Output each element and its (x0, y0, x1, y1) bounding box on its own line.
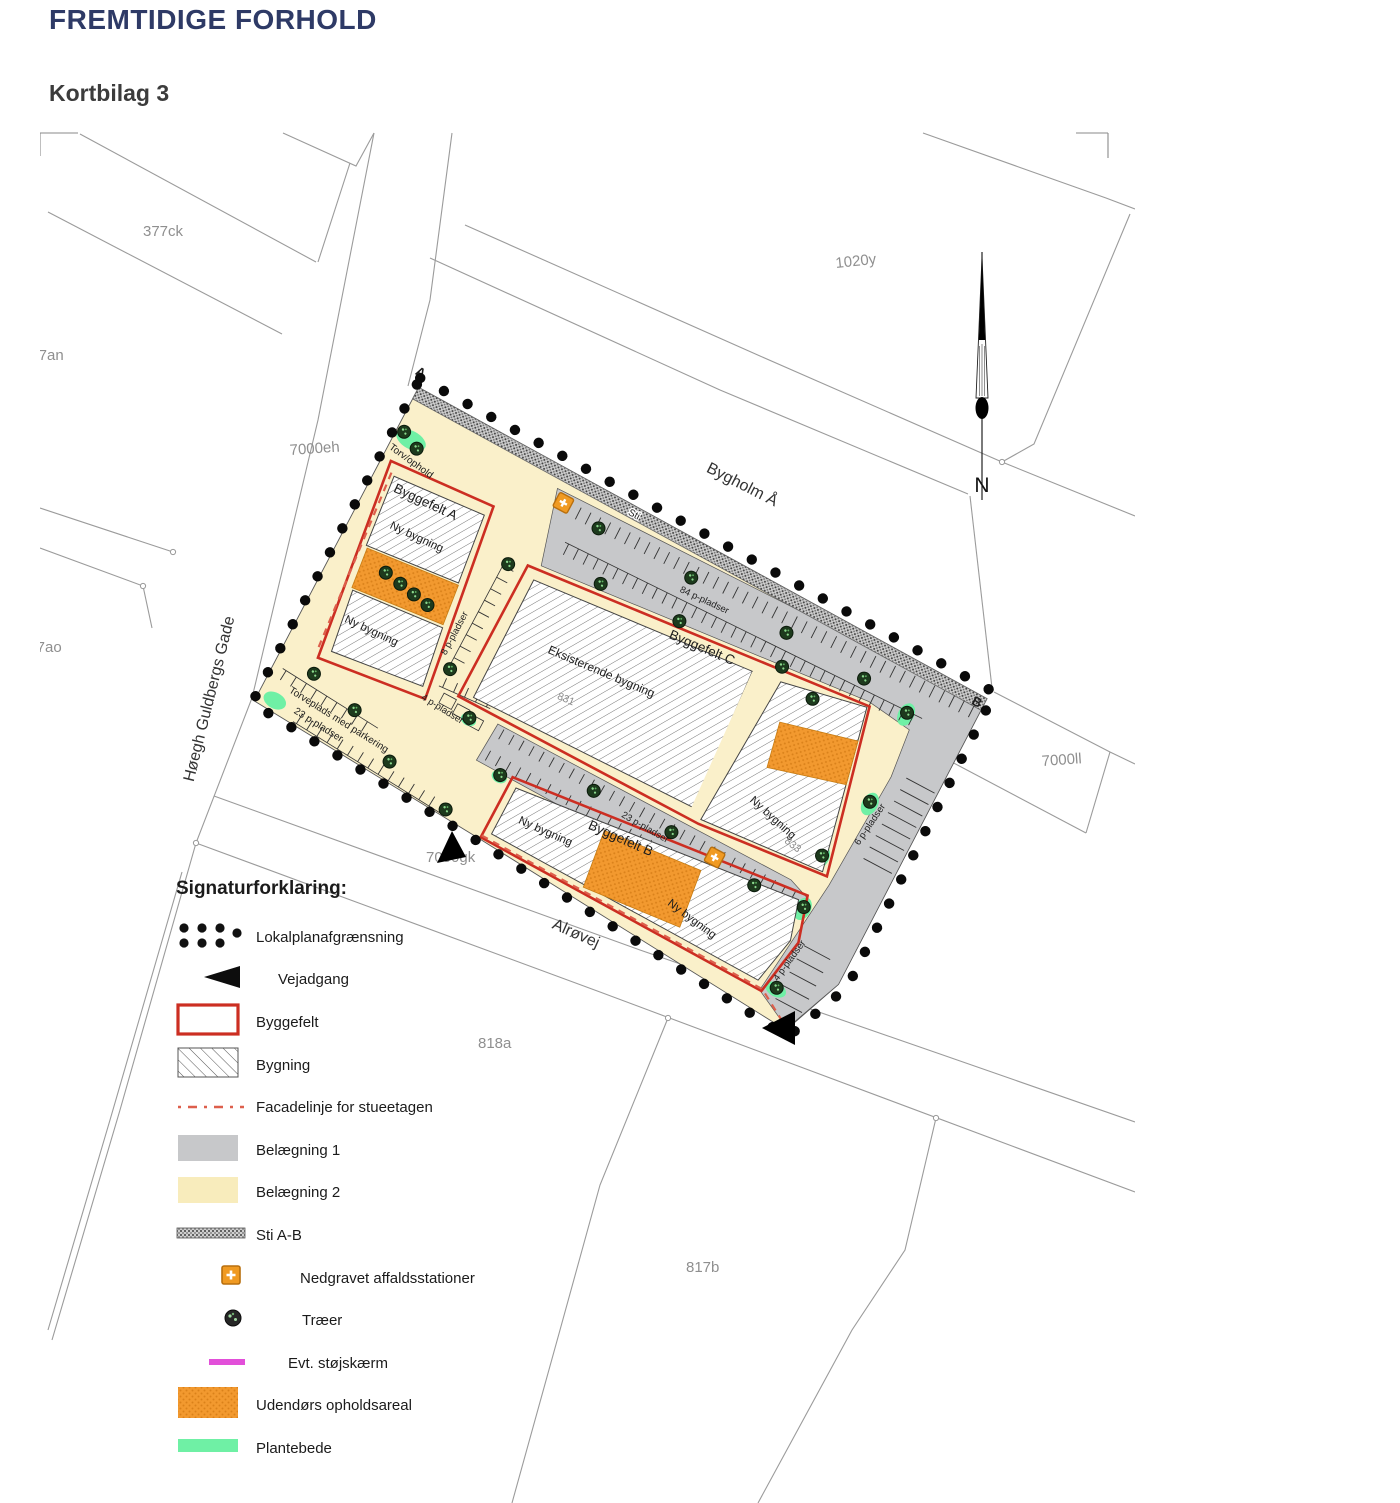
parcel-377an: 377an (40, 347, 64, 364)
legend-item-belaegning1: Belægning 1 (176, 1129, 506, 1172)
parcel-1020y: 1020y (835, 251, 878, 272)
magenta-line-icon (176, 1354, 288, 1372)
road-access-triangle-icon (176, 964, 278, 995)
legend-item-byggefelt: Byggefelt (176, 1001, 506, 1044)
legend-item-traeer: Træer (176, 1299, 506, 1342)
legend-item-sti: Sti A-B (176, 1214, 506, 1257)
legend-item-lokalplan: Lokalplanafgrænsning (176, 916, 506, 959)
green-swatch-icon (176, 1438, 256, 1459)
parcel-7000eh: 7000eh (289, 439, 340, 459)
legend-label: Sti A-B (256, 1227, 302, 1244)
legend-label: Plantebede (256, 1440, 332, 1457)
legend-label: Træer (302, 1312, 342, 1329)
tree-icon (176, 1307, 302, 1334)
legend-item-plantebede: Plantebede (176, 1427, 506, 1470)
waste-station-icon (176, 1264, 300, 1293)
red-dashed-line-icon (176, 1099, 256, 1117)
map-title: Kortbilag 3 (49, 80, 169, 107)
parcel-377ck: 377ck (143, 223, 184, 240)
legend-label: Belægning 2 (256, 1184, 340, 1201)
parcel-817b: 817b (686, 1259, 719, 1276)
page-title: FREMTIDIGE FORHOLD (49, 4, 377, 36)
legend-label: Vejadgang (278, 971, 349, 988)
legend-item-affald: Nedgravet affaldsstationer (176, 1257, 506, 1300)
legend-label: Udendørs opholdsareal (256, 1397, 412, 1414)
legend-item-facadelinje: Facadelinje for stueetagen (176, 1086, 506, 1129)
street-alroevej: Alrøvej (550, 916, 602, 952)
street-bygholm-aa: Bygholm Å (704, 458, 782, 510)
legend-item-opholdsareal: Udendørs opholdsareal (176, 1385, 506, 1428)
legend-item-belaegning2: Belægning 2 (176, 1172, 506, 1215)
legend-label: Evt. støjskærm (288, 1355, 388, 1372)
north-arrow: N (974, 252, 989, 500)
legend-label: Belægning 1 (256, 1142, 340, 1159)
legend-item-stoejskaerm: Evt. støjskærm (176, 1342, 506, 1385)
legend-label: Nedgravet affaldsstationer (300, 1270, 475, 1287)
north-label: N (974, 474, 989, 497)
parcel-377ao: 377ao (40, 639, 62, 656)
orange-swatch-icon (176, 1386, 256, 1425)
legend-item-vejadgang: Vejadgang (176, 959, 506, 1002)
legend-heading: Signaturforklaring: (176, 878, 506, 900)
gray-swatch-icon (176, 1134, 256, 1167)
legend-label: Byggefelt (256, 1014, 319, 1031)
legend-item-bygning: Bygning (176, 1044, 506, 1087)
legend-label: Facadelinje for stueetagen (256, 1099, 433, 1116)
page: FREMTIDIGE FORHOLD Kortbilag 3 (0, 0, 1400, 1503)
legend-label: Bygning (256, 1057, 310, 1074)
red-outline-rect-icon (176, 1003, 256, 1042)
legend: Signaturforklaring: Lokalplanafgrænsning… (176, 878, 506, 1470)
parcel-7000ll: 7000ll (1041, 750, 1082, 770)
hatched-rect-icon (176, 1046, 256, 1085)
path-band-icon (176, 1226, 256, 1245)
street-hoegh-guldbergs-gade: Høegh Guldbergs Gade (181, 614, 239, 783)
legend-label: Lokalplanafgrænsning (256, 929, 404, 946)
cream-swatch-icon (176, 1176, 256, 1209)
boundary-dots-icon (176, 919, 256, 956)
